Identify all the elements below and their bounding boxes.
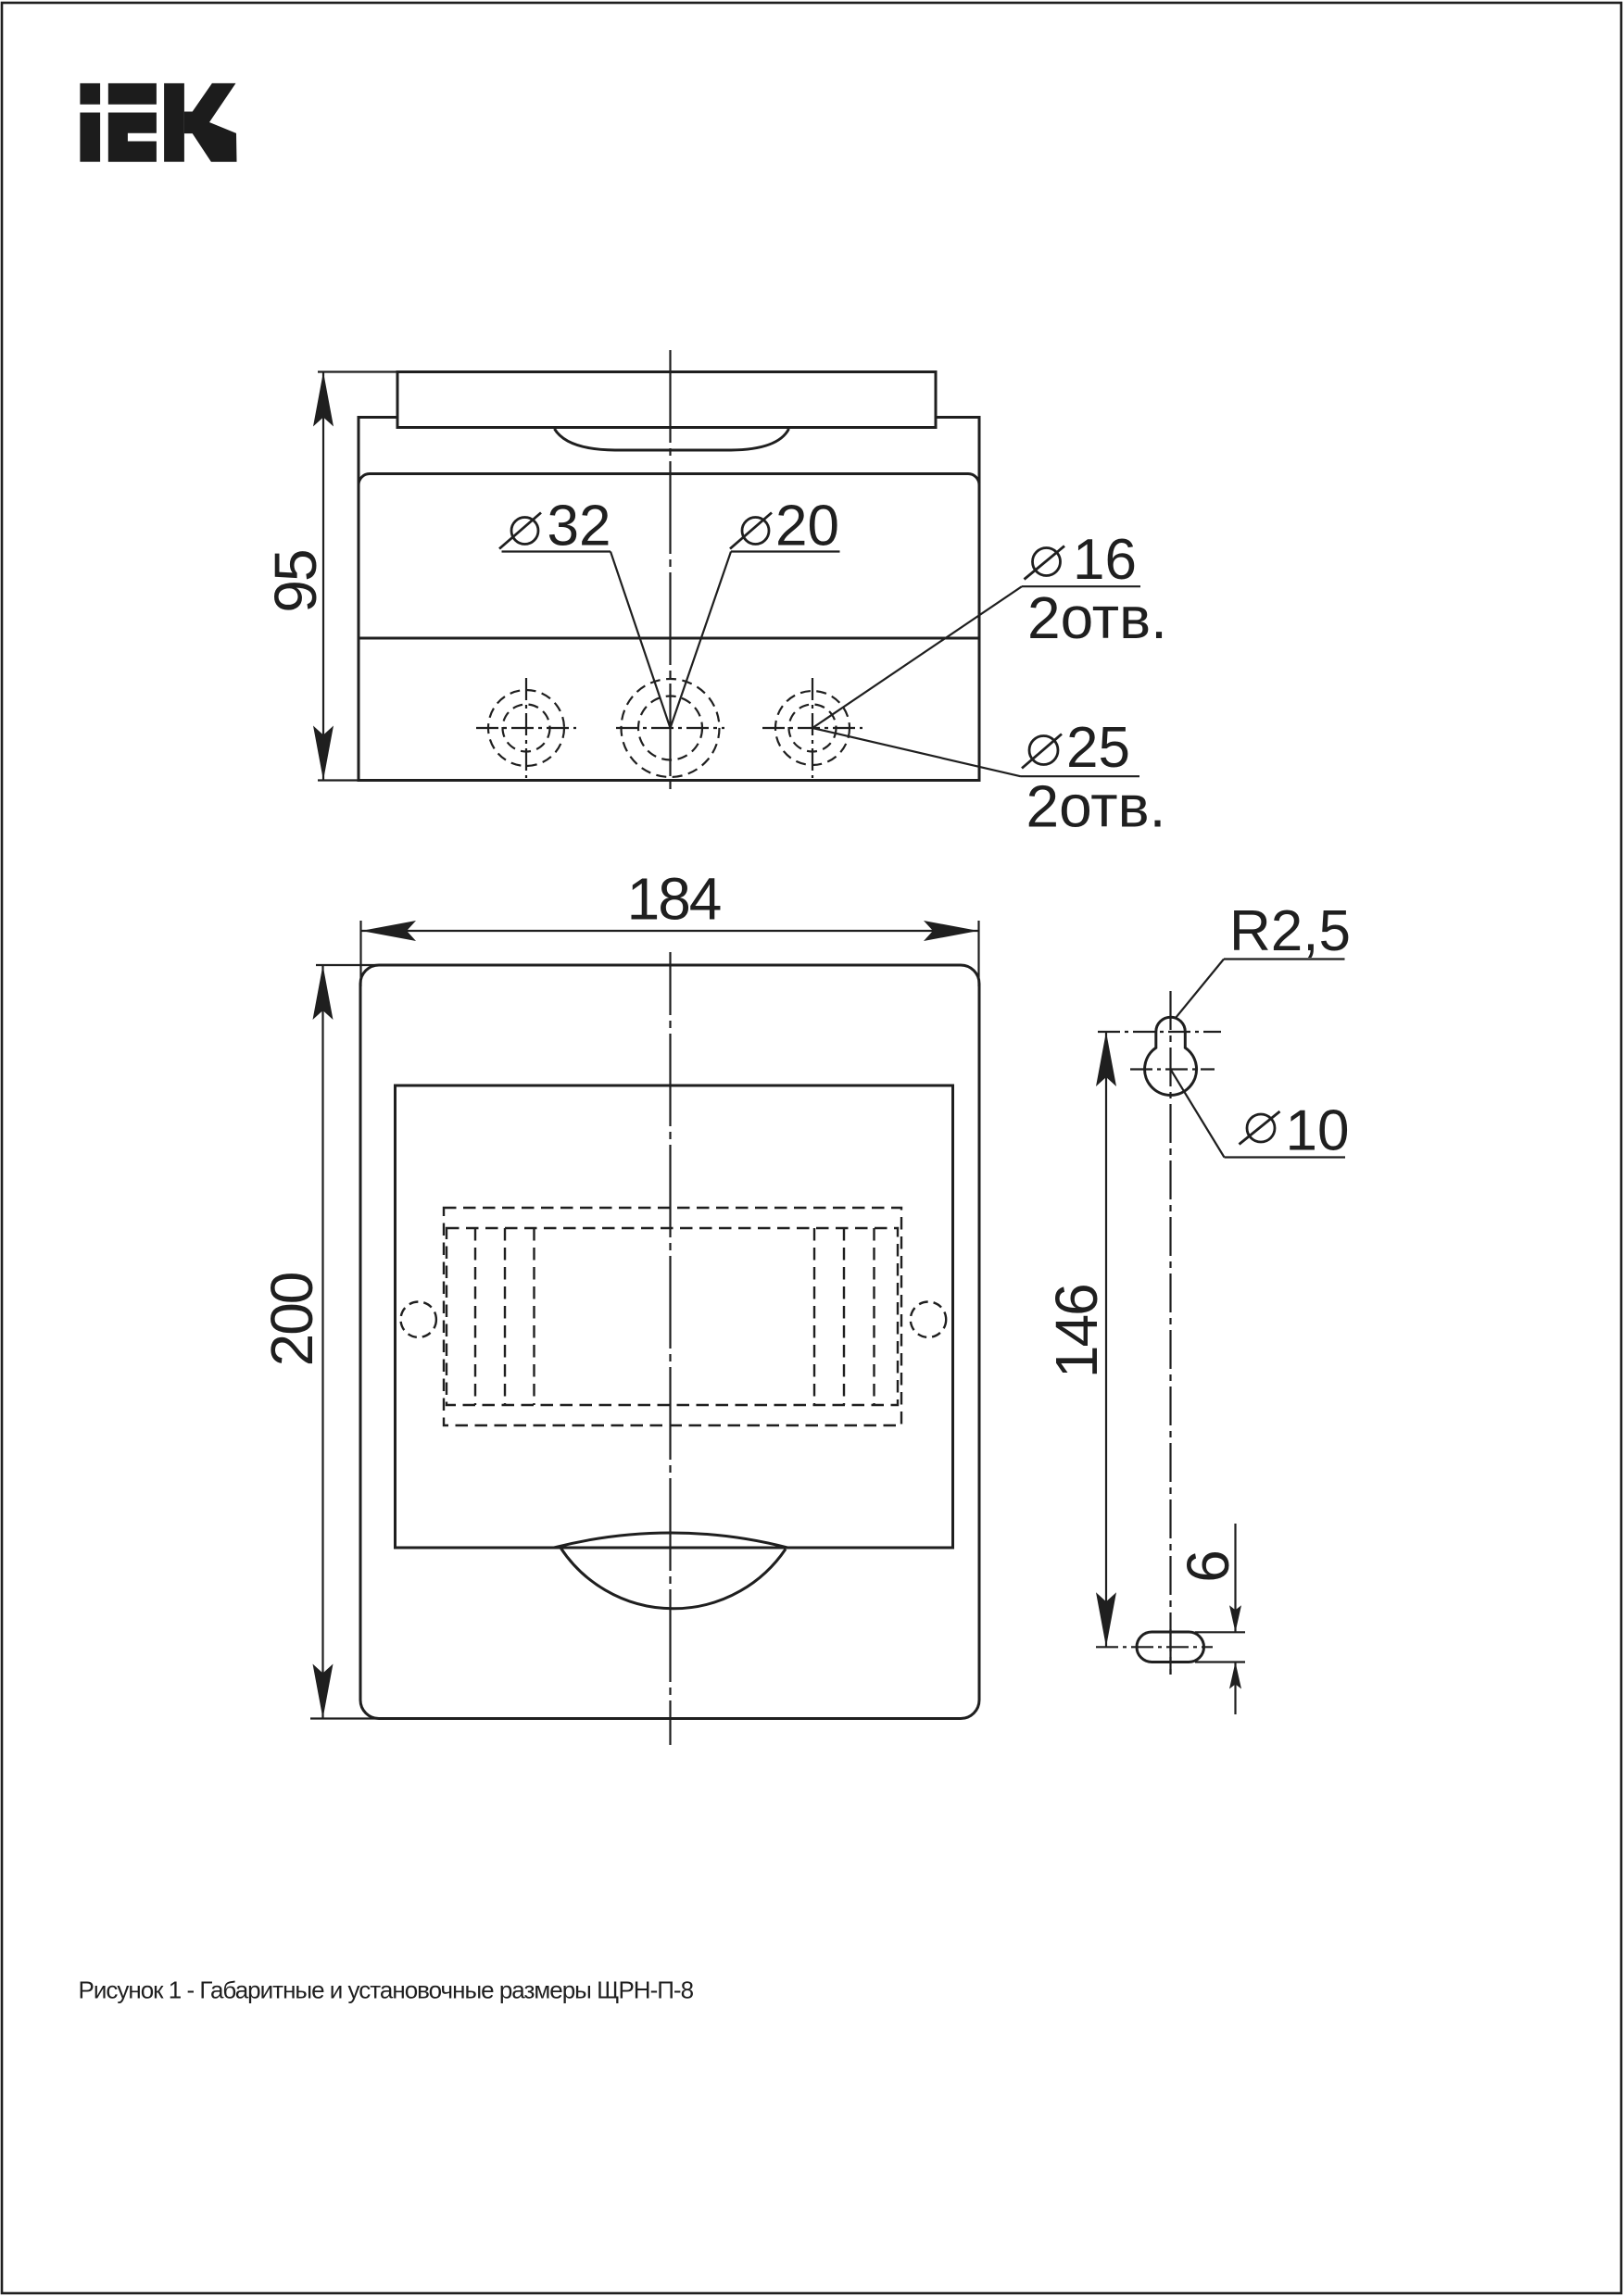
svg-text:32: 32: [548, 495, 611, 558]
svg-text:6: 6: [1175, 1549, 1241, 1583]
svg-text:Рисунок 1 - Габаритные и устан: Рисунок 1 - Габаритные и установочные ра…: [79, 1976, 694, 2004]
svg-text:95: 95: [262, 550, 329, 612]
svg-text:200: 200: [258, 1273, 325, 1366]
svg-text:2отв.: 2отв.: [1026, 773, 1166, 840]
svg-text:16: 16: [1073, 528, 1137, 592]
svg-text:R2,5: R2,5: [1229, 899, 1351, 963]
svg-text:146: 146: [1043, 1285, 1110, 1378]
svg-text:10: 10: [1286, 1099, 1350, 1163]
svg-text:184: 184: [627, 866, 721, 933]
svg-text:20: 20: [775, 495, 839, 558]
svg-text:25: 25: [1066, 716, 1130, 780]
svg-text:2отв.: 2отв.: [1027, 584, 1167, 651]
